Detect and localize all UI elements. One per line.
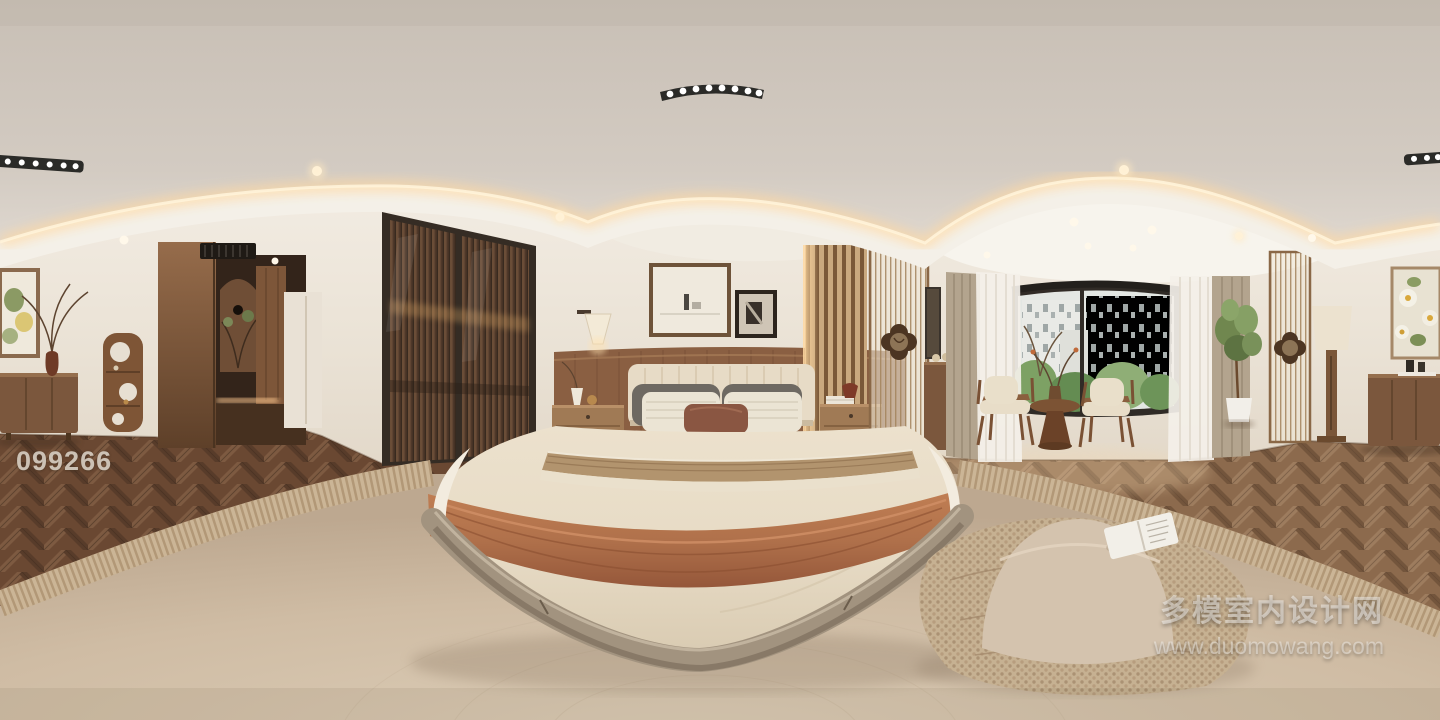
artwork-floral-right (1392, 268, 1440, 358)
vase-left (45, 351, 58, 376)
closet-sliding-doors (382, 212, 536, 466)
lattice-screen-left (870, 248, 928, 452)
sheer-curtain-left (976, 272, 1022, 462)
artwork-above-bed-large (651, 265, 729, 335)
closet-hallway (158, 242, 322, 448)
ac-vent-grille (200, 243, 256, 259)
sideboard-left-body (0, 373, 78, 433)
lamp-shade (1312, 306, 1352, 350)
panorama-image: 099266 多模室内设计网 www.duomowang.com (0, 0, 1440, 720)
display-shelf (103, 333, 143, 432)
closet-column (158, 242, 216, 448)
bottom-vignette (0, 688, 1440, 720)
sideboard-right-body (1368, 374, 1440, 446)
watermark-site-name: 多模室内设计网 (1154, 596, 1384, 628)
sideboard-right (1360, 360, 1440, 456)
watermark-site-url: www.duomowang.com (1154, 634, 1384, 658)
watermark-site: 多模室内设计网 www.duomowang.com (1154, 596, 1384, 658)
plant-pot (1226, 398, 1252, 422)
artwork-floral-left (0, 270, 38, 356)
lattice-screen-right (1270, 252, 1310, 442)
bed (628, 364, 815, 434)
top-vignette (0, 0, 1440, 26)
watermark-photo-id: 099266 (16, 446, 112, 477)
hallway-end-wall (284, 292, 322, 428)
decor-dark-vases (1406, 360, 1414, 374)
artwork-above-bed-small (737, 292, 775, 336)
hallway-cabinet (256, 266, 286, 406)
gold-sphere-decor (587, 395, 597, 405)
